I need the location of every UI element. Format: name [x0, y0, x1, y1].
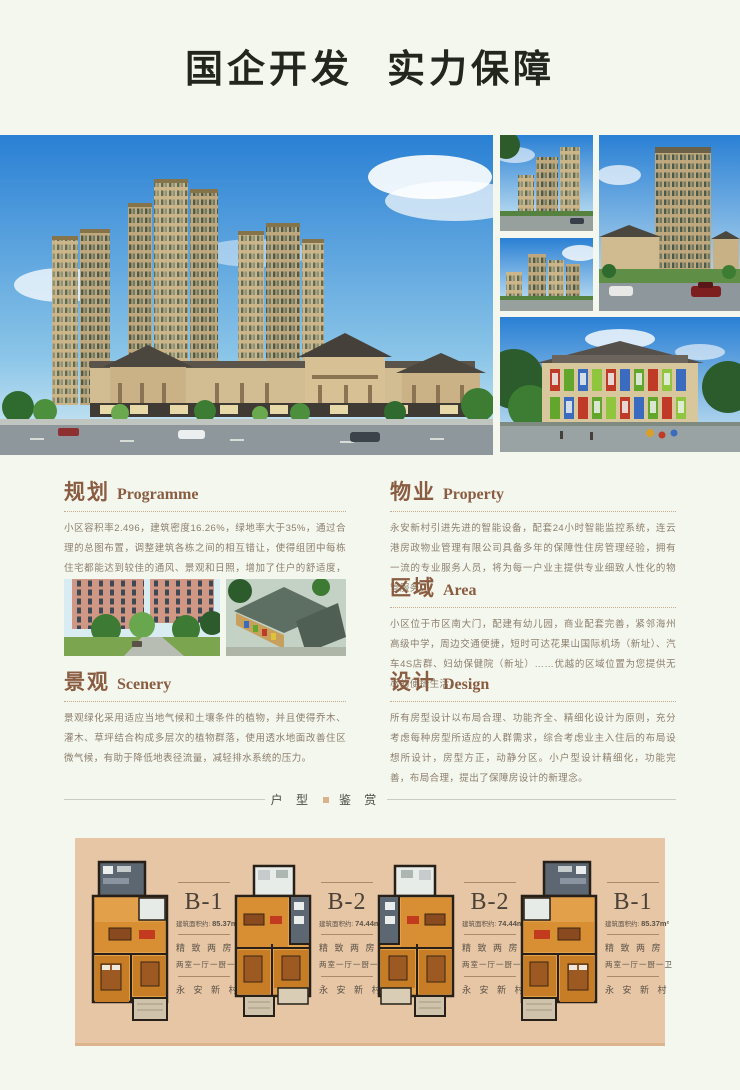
floorplan-unit-b1-left: B-1 建筑面积约: 85.37m² 精 致 两 房 两室一厅一厨一卫 永 安 … — [89, 858, 232, 1043]
floorplan-divider: 户 型 鉴 赏 — [64, 791, 676, 808]
section-area-title-zh: 区域 — [390, 577, 436, 600]
main-building-rendering-photo — [0, 135, 493, 455]
section-planning-title: 规划Programme — [64, 476, 346, 512]
divider-line-right — [387, 799, 676, 800]
section-area-title-en: Area — [443, 582, 476, 599]
floorplan-label: B-2 建筑面积约: 74.44m² 精 致 两 房 两室一厅一厨一卫 永 安 … — [462, 876, 518, 1043]
floorplan-type: 精 致 两 房 — [462, 941, 518, 954]
divider-line-left — [64, 799, 265, 800]
section-property-title: 物业Property — [390, 476, 676, 512]
floorplan-brand: 永 安 新 村 — [462, 983, 518, 996]
section-scenery-body: 景观绿化采用适应当地气候和土壤条件的植物，并且使得乔木、灌木、草坪结合构成多层次… — [64, 709, 346, 769]
kindergarten-aerial-photo — [226, 579, 346, 656]
divider-square-icon — [323, 797, 329, 803]
floorplan-layout: 两室一厅一厨一卫 — [605, 959, 661, 970]
floorplan-area-label: 建筑面积约: — [462, 921, 496, 928]
floorplan-unit-b2-left: B-2 建筑面积约: 74.44m² 精 致 两 房 两室一厅一厨一卫 永 安 … — [232, 858, 375, 1043]
page-title-right: 实力保障 — [387, 49, 555, 91]
floorplan-label: B-2 建筑面积约: 74.44m² 精 致 两 房 两室一厅一厨一卫 永 安 … — [319, 876, 375, 1043]
floorplan-label: B-1 建筑面积约: 85.37m² 精 致 两 房 两室一厅一厨一卫 永 安 … — [176, 876, 232, 1043]
floorplan-area-label: 建筑面积约: — [605, 921, 639, 928]
tower-photo-tall — [599, 135, 740, 311]
floorplan-drawing-b1 — [89, 858, 171, 1026]
page-title-left: 国企开发 — [185, 49, 353, 91]
section-property-title-en: Property — [443, 486, 504, 503]
floorplan-brand: 永 安 新 村 — [319, 983, 375, 996]
divider-label-left: 户 型 — [271, 791, 313, 808]
towers-photo-small-1 — [500, 135, 593, 231]
section-design-title: 设计Design — [390, 666, 676, 702]
divider-label-right: 鉴 赏 — [339, 791, 381, 808]
section-design-body: 所有房型设计以布局合理、功能齐全、精细化设计为原则，充分考虑每种房型所适应的人群… — [390, 709, 676, 789]
floorplan-name: B-1 — [176, 889, 232, 916]
section-scenery-title-en: Scenery — [117, 676, 171, 693]
kindergarten-photo — [500, 317, 740, 452]
floorplan-layout: 两室一厅一厨一卫 — [176, 959, 232, 970]
towers-photo-small-2 — [500, 238, 593, 311]
section-planning-title-zh: 规划 — [64, 481, 110, 504]
section-design-title-en: Design — [443, 676, 489, 693]
floorplan-type: 精 致 两 房 — [605, 941, 661, 954]
floorplan-drawing-b1-mirrored — [518, 858, 600, 1026]
floorplan-drawing-b2-mirrored — [375, 858, 457, 1026]
floorplan-brand: 永 安 新 村 — [605, 983, 661, 996]
section-design-title-zh: 设计 — [390, 671, 436, 694]
courtyard-rendering-photo — [64, 579, 220, 656]
page-title: 国企开发实力保障 — [0, 38, 740, 93]
section-scenery-title: 景观Scenery — [64, 666, 346, 702]
floorplan-panel: B-1 建筑面积约: 85.37m² 精 致 两 房 两室一厅一厨一卫 永 安 … — [75, 838, 665, 1046]
section-scenery-title-zh: 景观 — [64, 671, 110, 694]
floorplan-name: B-2 — [462, 889, 518, 916]
floorplan-area-label: 建筑面积约: — [176, 921, 210, 928]
floorplan-label: B-1 建筑面积约: 85.37m² 精 致 两 房 两室一厅一厨一卫 永 安 … — [605, 876, 661, 1043]
floorplan-unit-b2-right: B-2 建筑面积约: 74.44m² 精 致 两 房 两室一厅一厨一卫 永 安 … — [375, 858, 518, 1043]
section-property-title-zh: 物业 — [390, 481, 436, 504]
floorplan-name: B-1 — [605, 889, 661, 916]
floorplan-drawing-b2 — [232, 858, 314, 1026]
floorplan-unit-b1-right: B-1 建筑面积约: 85.37m² 精 致 两 房 两室一厅一厨一卫 永 安 … — [518, 858, 661, 1043]
floorplan-brand: 永 安 新 村 — [176, 983, 232, 996]
section-area-title: 区域Area — [390, 572, 676, 608]
floorplan-area-label: 建筑面积约: — [319, 921, 353, 928]
floorplan-type: 精 致 两 房 — [176, 941, 232, 954]
floorplan-layout: 两室一厅一厨一卫 — [319, 959, 375, 970]
floorplan-type: 精 致 两 房 — [319, 941, 375, 954]
floorplan-area-value: 85.37m² — [641, 919, 669, 928]
section-scenery: 景观Scenery 景观绿化采用适应当地气候和土壤条件的植物，并且使得乔木、灌木… — [64, 666, 346, 769]
section-design: 设计Design 所有房型设计以布局合理、功能齐全、精细化设计为原则，充分考虑每… — [390, 666, 676, 789]
floorplan-layout: 两室一厅一厨一卫 — [462, 959, 518, 970]
floorplan-name: B-2 — [319, 889, 375, 916]
section-planning-title-en: Programme — [117, 486, 198, 503]
